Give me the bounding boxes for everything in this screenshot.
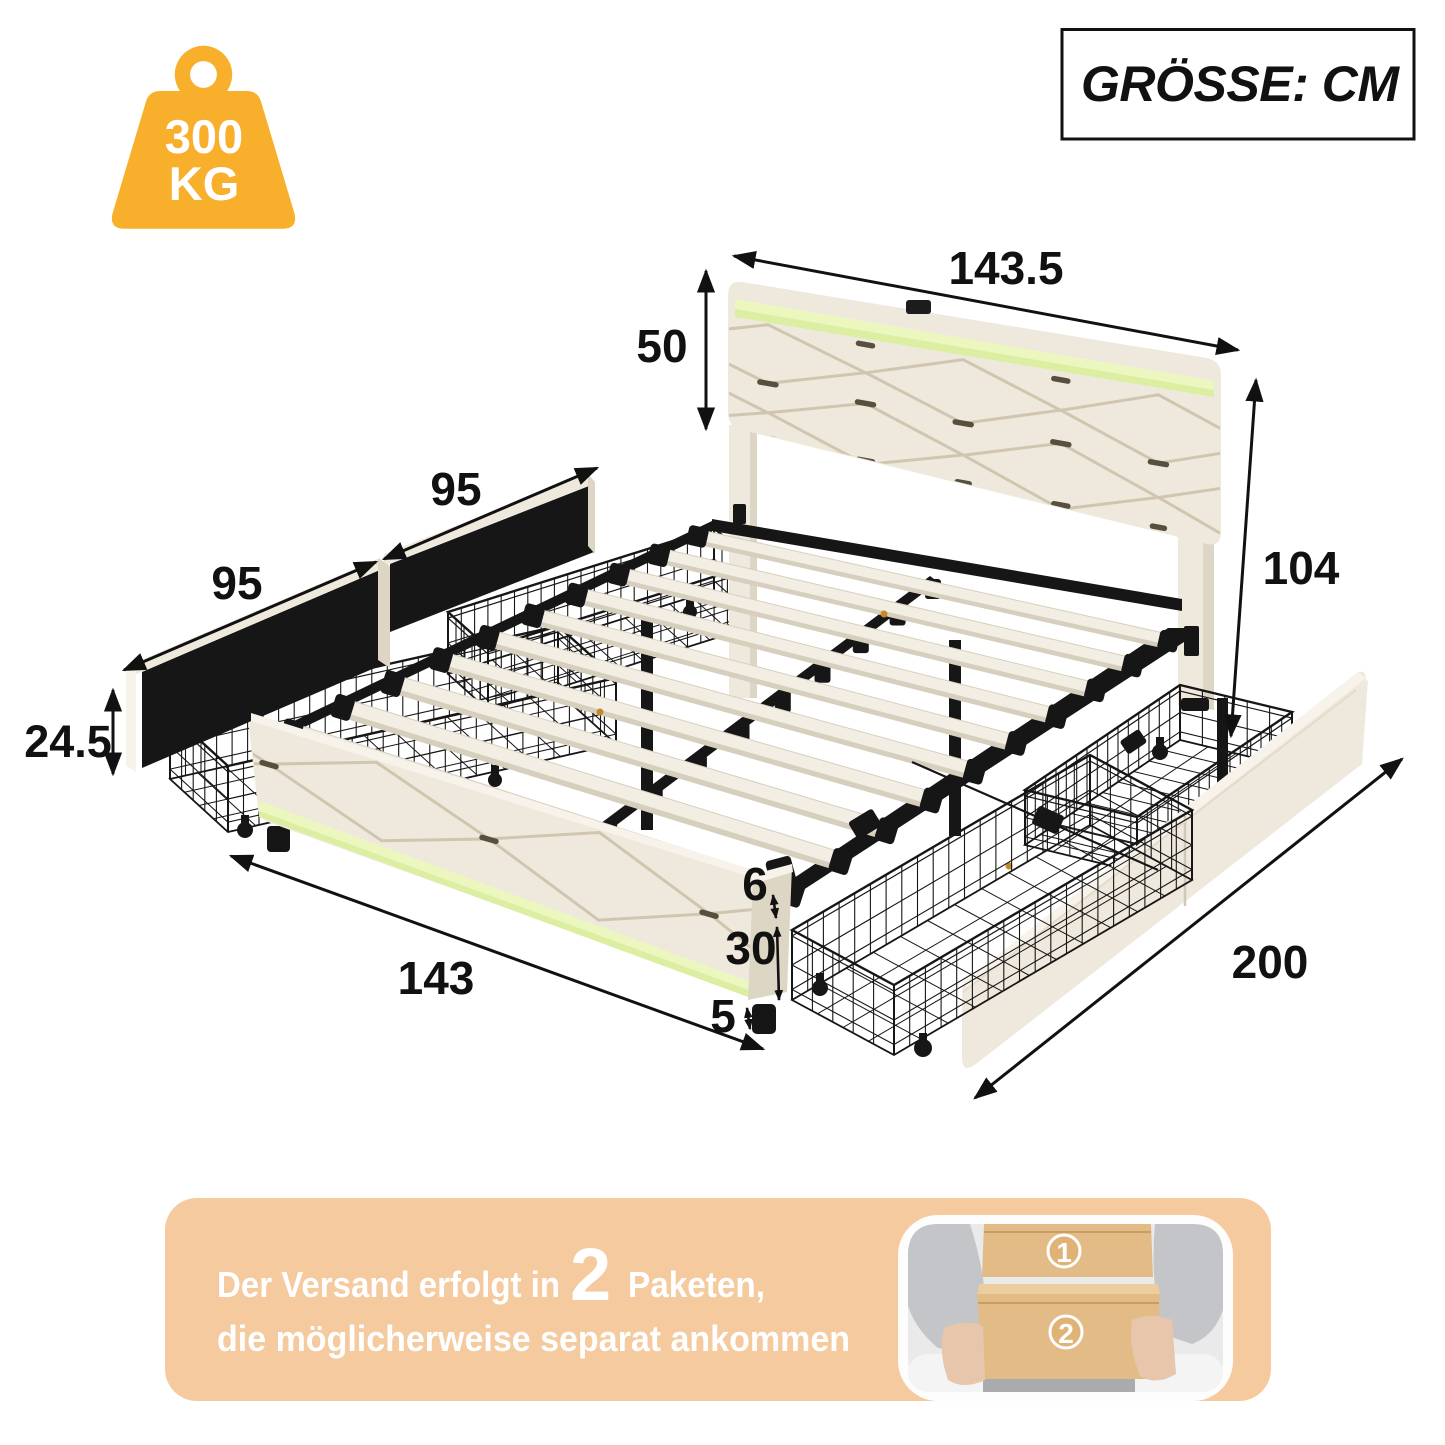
svg-text:95: 95 xyxy=(211,557,262,609)
svg-text:95: 95 xyxy=(430,463,481,515)
svg-text:5: 5 xyxy=(710,990,736,1042)
svg-text:GRÖSSE: CM: GRÖSSE: CM xyxy=(1081,56,1400,112)
svg-text:6: 6 xyxy=(742,858,768,910)
svg-text:2: 2 xyxy=(570,1233,611,1316)
svg-text:30: 30 xyxy=(725,922,776,974)
svg-text:104: 104 xyxy=(1263,542,1340,594)
svg-text:300: 300 xyxy=(165,110,243,163)
svg-text:KG: KG xyxy=(169,157,240,210)
svg-text:24.5: 24.5 xyxy=(24,716,112,767)
svg-text:50: 50 xyxy=(636,320,687,372)
svg-text:1: 1 xyxy=(1056,1237,1072,1268)
svg-text:143.5: 143.5 xyxy=(948,242,1063,294)
svg-text:2: 2 xyxy=(1058,1318,1074,1349)
svg-text:200: 200 xyxy=(1232,936,1309,988)
svg-text:Paketen,: Paketen, xyxy=(628,1264,765,1305)
svg-text:Der Versand erfolgt in: Der Versand erfolgt in xyxy=(217,1264,560,1305)
svg-text:die möglicherweise separat ank: die möglicherweise separat ankommen xyxy=(217,1318,850,1359)
svg-text:143: 143 xyxy=(398,952,475,1004)
